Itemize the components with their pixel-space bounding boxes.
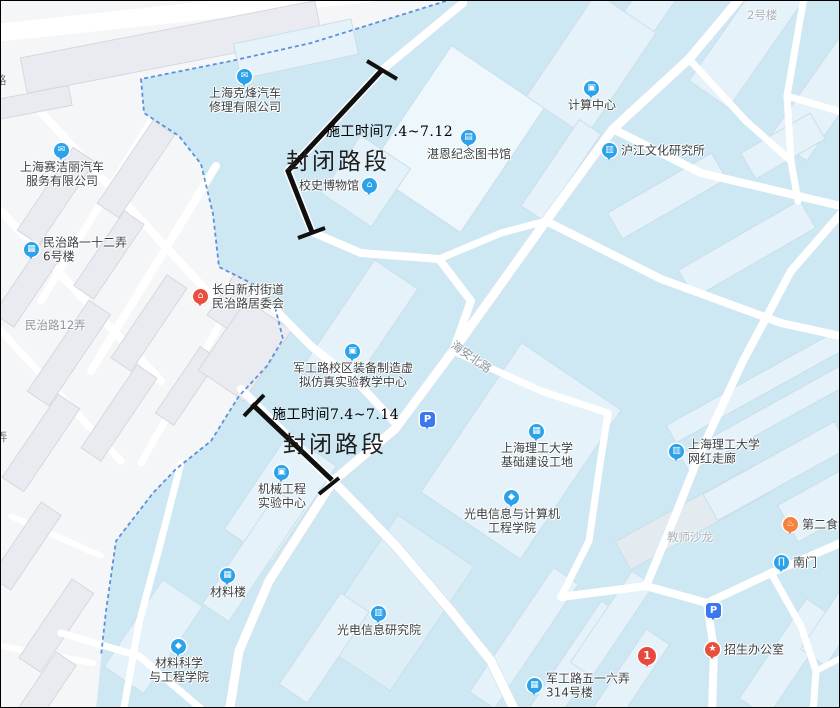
car-service-icon: ✉ (54, 143, 69, 158)
poi-label: 上海理工大学基础建设工地 (501, 442, 573, 469)
car-repair-icon: ✉ (237, 69, 252, 84)
poi-label-line: 上海理工大学 (501, 442, 573, 456)
poi-label-line: 314号楼 (546, 686, 630, 700)
poi-label-line: 民治路一十二弄 (43, 237, 127, 251)
poi-label-line: 军工路五一六弄 (546, 673, 630, 687)
poi-label-line: 机械工程 (258, 483, 306, 497)
research-institute-icon: ▥ (371, 606, 386, 621)
poi-label: 上海克烽汽车修理有限公司 (209, 87, 281, 114)
neighborhood-committee-icon: ⌂ (193, 289, 208, 304)
poi-label-line: 校史博物馆 (299, 179, 359, 193)
building-label-no2: 2号楼 (747, 7, 777, 23)
poi-label: 上海理工大学网红走廊 (688, 439, 760, 466)
poi-label-line: 材料科学 (149, 657, 209, 671)
poi-label-line: 第二食堂 (802, 518, 840, 532)
street-label-minzhilu-12nong: 民治路12弄 (25, 317, 86, 333)
poi-label: 南门 (793, 556, 817, 570)
dorm-building-icon: ▦ (527, 678, 542, 693)
poi-label-line: 与工程学院 (149, 671, 209, 685)
poi-label: 民治路一十二弄6号楼 (43, 237, 127, 264)
poi-label-line: 6号楼 (43, 250, 127, 264)
poi-label-line: 光电信息研究院 (337, 624, 421, 638)
institute-icon: ▥ (602, 143, 617, 158)
materials-building-icon: ▦ (220, 568, 235, 583)
canteen-icon: ♨ (783, 517, 798, 532)
edge-label-partial-nong: 弄 (0, 429, 8, 445)
teaching-center-icon: ▣ (345, 344, 360, 359)
poi-label-line: 民治路居委会 (212, 297, 284, 311)
parking-icon: P (706, 603, 721, 618)
poi-label-line: 工程学院 (464, 522, 560, 536)
mechanical-lab-icon: ▣ (274, 465, 289, 480)
computing-center-icon: ▣ (584, 81, 599, 96)
poi-label: 军工路五一六弄314号楼 (546, 673, 630, 700)
poi-label: 沪江文化研究所 (621, 144, 705, 158)
poi-label-line: 光电信息与计算机 (464, 508, 560, 522)
poi-label: 材料科学与工程学院 (149, 657, 209, 684)
corridor-icon: ▥ (669, 444, 684, 459)
closure-annotation-1: 施工时间7.4~7.12 封闭路段 (286, 121, 453, 176)
poi-label: 招生办公室 (724, 643, 784, 657)
poi-label-line: 上海赛洁丽汽车 (20, 161, 104, 175)
closure-2-time: 施工时间7.4~7.14 (272, 404, 399, 424)
poi-label-line: 修理有限公司 (209, 101, 281, 115)
closure-2-label: 封闭路段 (283, 425, 399, 459)
poi-label-line: 上海克烽汽车 (209, 87, 281, 101)
construction-site-icon: ▦ (529, 424, 544, 439)
poi-label: 校史博物馆 (299, 179, 359, 193)
poi-label-line: 上海理工大学 (688, 439, 760, 453)
poi-label: 光电信息与计算机工程学院 (464, 508, 560, 535)
closure-1-label: 封闭路段 (286, 142, 453, 176)
poi-label-line: 网红走廊 (688, 452, 760, 466)
poi-label: 机械工程实验中心 (258, 483, 306, 510)
south-gate-icon: ∏ (774, 555, 789, 570)
poi-label-line: 计算中心 (568, 99, 616, 113)
poi-label-line: 拟仿真实验教学中心 (293, 376, 413, 390)
parking-icon: P (420, 412, 435, 427)
college-icon: ◆ (504, 490, 519, 505)
poi-label: 军工路校区装备制造虚拟仿真实验教学中心 (293, 362, 413, 389)
poi-label-line: 军工路校区装备制造虚 (293, 362, 413, 376)
poi-label-line: 南门 (793, 556, 817, 570)
basemap-graphics (1, 1, 840, 708)
poi-label: 计算中心 (568, 99, 616, 113)
area-label-teacher-salon: 教师沙龙 (667, 529, 713, 545)
poi-label-line: 长白新村街道 (212, 284, 284, 298)
closure-1-time: 施工时间7.4~7.12 (326, 121, 453, 141)
admissions-office-icon: ★ (705, 642, 720, 657)
poi-label-line: 实验中心 (258, 497, 306, 511)
residential-building-icon: ▦ (24, 242, 39, 257)
poi-label-line: 基础建设工地 (501, 456, 573, 470)
poi-label-line: 招生办公室 (724, 643, 784, 657)
closure-annotation-2: 施工时间7.4~7.14 封闭路段 (267, 404, 399, 459)
museum-icon: ⌂ (362, 178, 377, 193)
poi-label-line: 沪江文化研究所 (621, 144, 705, 158)
poi-label-line: 材料楼 (210, 586, 246, 600)
materials-college-icon: ◆ (171, 639, 186, 654)
poi-label: 长白新村街道民治路居委会 (212, 284, 284, 311)
edge-label-partial-lu: 路 (0, 72, 7, 88)
poi-label: 第二食堂 (802, 518, 840, 532)
poi-label-line: 服务有限公司 (20, 175, 104, 189)
poi-label: 材料楼 (210, 586, 246, 600)
poi-label: 光电信息研究院 (337, 624, 421, 638)
poi-label: 上海赛洁丽汽车服务有限公司 (20, 161, 104, 188)
numbered-pin-icon: 1 (638, 647, 656, 665)
map-canvas[interactable]: 施工时间7.4~7.12 封闭路段 施工时间7.4~7.14 封闭路段 民治路1… (0, 0, 840, 708)
library-icon: ▤ (461, 130, 476, 145)
